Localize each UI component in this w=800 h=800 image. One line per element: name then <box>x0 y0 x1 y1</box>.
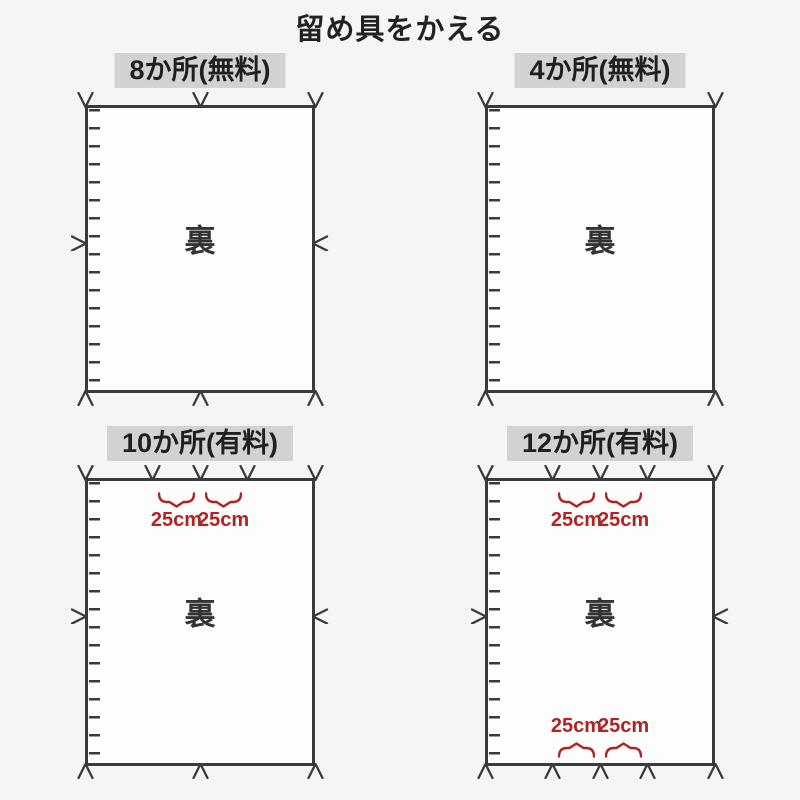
fastener-clip-icon <box>707 390 724 406</box>
fastener-clip-icon <box>307 92 324 108</box>
fastener-clip-icon <box>192 465 209 481</box>
panel-label: 12か所(有料) <box>507 426 693 461</box>
back-side-label: 裏 <box>185 588 216 633</box>
futon-back-diagram: 裏 <box>85 105 315 393</box>
edge-stitch-ticks-icon <box>89 109 100 387</box>
measurement-brace-icon <box>158 492 195 508</box>
back-side-label: 裏 <box>585 215 616 260</box>
back-side-label: 裏 <box>585 588 616 633</box>
fastener-clip-icon <box>471 608 488 624</box>
measurement-brace-icon <box>605 492 642 508</box>
futon-back-diagram: 裏 25cm25cm25cm25cm <box>485 478 715 766</box>
measurement-label: 25cm <box>198 509 249 532</box>
edge-stitch-ticks-icon <box>89 482 100 760</box>
fastener-clip-icon <box>77 390 94 406</box>
panel-4-locations: 4か所(無料) 裏 <box>485 105 715 393</box>
fastener-clip-icon <box>639 465 656 481</box>
fastener-clip-icon <box>192 390 209 406</box>
edge-stitch-ticks-icon <box>489 482 500 760</box>
fastener-clip-icon <box>144 465 161 481</box>
fastener-clip-icon <box>307 465 324 481</box>
panel-8-locations: 8か所(無料) 裏 <box>85 105 315 393</box>
fastener-clip-icon <box>71 235 88 251</box>
fastener-clip-icon <box>477 763 494 779</box>
panel-10-locations: 10か所(有料) 裏 25cm25cm <box>85 478 315 766</box>
fastener-clip-icon <box>192 763 209 779</box>
panel-label: 10か所(有料) <box>107 426 293 461</box>
fastener-clip-icon <box>477 465 494 481</box>
fastener-clip-icon <box>77 465 94 481</box>
fastener-clip-icon <box>544 763 561 779</box>
fastener-clip-icon <box>307 390 324 406</box>
measurement-brace-icon <box>605 742 642 758</box>
futon-back-diagram: 裏 <box>485 105 715 393</box>
fastener-clip-icon <box>544 465 561 481</box>
fastener-clip-icon <box>707 92 724 108</box>
fastener-clip-icon <box>71 608 88 624</box>
fastener-clip-icon <box>592 763 609 779</box>
fastener-clip-icon <box>639 763 656 779</box>
page-title: 留め具をかえる <box>0 6 800 48</box>
edge-stitch-ticks-icon <box>489 109 500 387</box>
fastener-clip-icon <box>477 92 494 108</box>
fastener-clip-icon <box>77 92 94 108</box>
measurement-label: 25cm <box>598 509 649 532</box>
fastener-clip-icon <box>477 390 494 406</box>
fastener-clip-icon <box>592 465 609 481</box>
fastener-clip-icon <box>312 608 329 624</box>
measurement-label: 25cm <box>551 715 602 738</box>
measurement-label: 25cm <box>551 509 602 532</box>
fastener-clip-icon <box>712 608 729 624</box>
fastener-clip-icon <box>312 235 329 251</box>
fastener-clip-icon <box>192 92 209 108</box>
measurement-brace-icon <box>558 492 595 508</box>
measurement-label: 25cm <box>598 715 649 738</box>
fastener-clip-icon <box>239 465 256 481</box>
panel-label: 4か所(無料) <box>515 53 686 88</box>
measurement-label: 25cm <box>151 509 202 532</box>
fastener-options-infographic: 留め具をかえる 8か所(無料) 裏 4か所(無料) 裏 10か所(有料) 裏 2… <box>0 0 800 800</box>
futon-back-diagram: 裏 25cm25cm <box>85 478 315 766</box>
panel-12-locations: 12か所(有料) 裏 25cm25cm25cm25cm <box>485 478 715 766</box>
fastener-clip-icon <box>77 763 94 779</box>
measurement-brace-icon <box>558 742 595 758</box>
measurement-brace-icon <box>205 492 242 508</box>
fastener-clip-icon <box>307 763 324 779</box>
fastener-clip-icon <box>707 763 724 779</box>
back-side-label: 裏 <box>185 215 216 260</box>
fastener-clip-icon <box>707 465 724 481</box>
panel-label: 8か所(無料) <box>115 53 286 88</box>
